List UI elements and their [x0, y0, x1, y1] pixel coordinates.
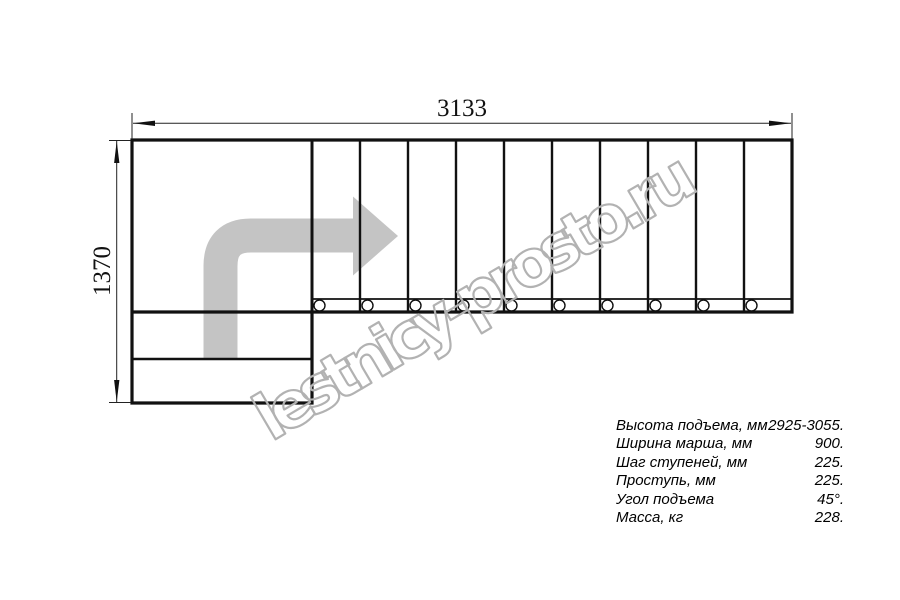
- dimension-arrow-left-icon: [133, 121, 155, 126]
- specs-table: Высота подъема, мм 2925-3055. Ширина мар…: [616, 417, 844, 527]
- baluster-circle: [746, 300, 757, 311]
- spec-value: 225.: [815, 472, 844, 490]
- dimension-arrow-down-icon: [114, 380, 119, 402]
- spec-row-flight-width: Ширина марша, мм 900.: [616, 435, 844, 453]
- stair-drawing-page: 3133 1370 lestnicy-prosto.ru Высота подъ…: [0, 0, 900, 600]
- spec-value: 228.: [815, 509, 844, 527]
- spec-value: 900.: [815, 435, 844, 453]
- baluster-circle: [650, 300, 661, 311]
- spec-label: Проступь, мм: [616, 472, 716, 490]
- baluster-circle: [362, 300, 373, 311]
- height-dimension: 1370: [89, 141, 131, 403]
- spec-value: 45°.: [817, 491, 844, 509]
- spec-row-step-pitch: Шаг ступеней, мм 225.: [616, 454, 844, 472]
- width-dimension: 3133: [132, 95, 792, 139]
- baluster-circle: [698, 300, 709, 311]
- spec-value: 2925-3055.: [768, 417, 844, 435]
- spec-label: Шаг ступеней, мм: [616, 454, 747, 472]
- spec-label: Масса, кг: [616, 509, 683, 527]
- spec-label: Ширина марша, мм: [616, 435, 752, 453]
- spec-row-mass: Масса, кг 228.: [616, 509, 844, 527]
- spec-row-angle: Угол подъема 45°.: [616, 491, 844, 509]
- spec-row-tread: Проступь, мм 225.: [616, 472, 844, 490]
- height-dimension-value: 1370: [89, 246, 116, 296]
- width-dimension-value: 3133: [437, 95, 487, 122]
- spec-row-rise-height: Высота подъема, мм 2925-3055.: [616, 417, 844, 435]
- dimension-arrow-right-icon: [769, 121, 791, 126]
- spec-label: Высота подъема, мм: [616, 417, 768, 435]
- dimension-arrow-up-icon: [114, 141, 119, 163]
- baluster-circle: [602, 300, 613, 311]
- baluster-circle: [314, 300, 325, 311]
- baluster-circle: [554, 300, 565, 311]
- spec-value: 225.: [815, 454, 844, 472]
- spec-label: Угол подъема: [616, 491, 714, 509]
